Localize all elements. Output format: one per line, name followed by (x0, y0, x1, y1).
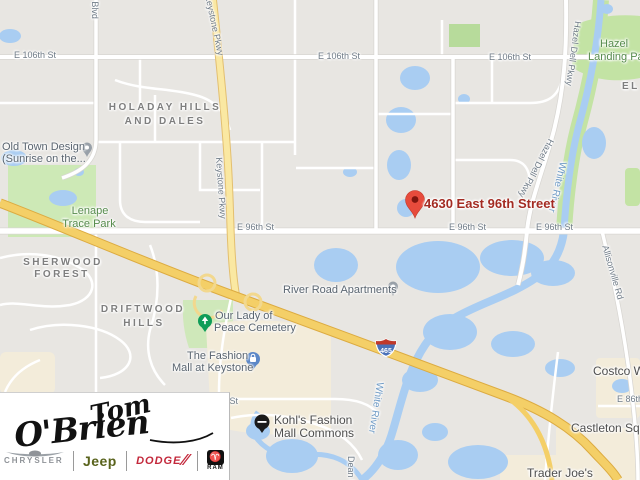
park-label-hazel-landing-line2: Landing Park (588, 51, 640, 63)
shield-route-number: 465 (380, 348, 392, 355)
dodge-wordmark: DODGE (136, 455, 181, 467)
chrysler-wings-icon (4, 450, 66, 458)
brand-dodge: DODGE ∕∕ (136, 452, 188, 470)
street-label-westfield-blvd: Westfield Blvd (90, 0, 100, 19)
poi-label-fashion-mall-line1[interactable]: The Fashion (187, 350, 248, 362)
neighborhood-driftwood-line1: DRIFTWOOD (101, 304, 185, 315)
neighborhood-driftwood-line2: HILLS (123, 318, 164, 329)
neighborhood-holaday-line2: AND DALES (125, 116, 206, 127)
dealer-name-last: O'Brien (12, 402, 150, 455)
brand-divider-2 (126, 451, 127, 471)
poi-label-old-town-line2[interactable]: (Sunrise on the... (2, 153, 86, 165)
poi-label-castleton-square[interactable]: Castleton Square (571, 421, 640, 435)
neighborhood-sherwood-line2: FOREST (34, 269, 90, 280)
street-label-e106th-1: E 106th St (14, 50, 56, 60)
neighborhood-el-partial: EL (622, 81, 640, 92)
park-label-hazel-landing-line1: Hazel (600, 38, 628, 50)
poi-label-trader-joes[interactable]: Trader Joe's (527, 466, 593, 480)
street-label-e96th-3: E 96th St (536, 222, 573, 232)
jeep-wordmark: Jeep (83, 453, 117, 469)
street-label-dean-rd: Dean Rd (346, 456, 356, 480)
destination-address-label[interactable]: 4630 East 96th Street (424, 196, 555, 211)
street-label-e106th-2: E 106th St (318, 51, 360, 61)
street-label-e106th-3: E 106th St (489, 52, 531, 62)
brand-row: CHRYSLER Jeep DODGE ∕∕ ♈ RAM (4, 450, 224, 471)
neighborhood-sherwood-line1: SHERWOOD (23, 257, 103, 268)
poi-label-costco[interactable]: Costco Wholesale (593, 364, 640, 378)
street-label-e96th-1: E 96th St (237, 222, 274, 232)
poi-label-river-road-apartments[interactable]: River Road Apartments (283, 284, 397, 296)
ram-wordmark: RAM (207, 465, 224, 471)
poi-label-cemetery-line2[interactable]: Peace Cemetery (214, 322, 296, 334)
poi-label-old-town-line1[interactable]: Old Town Design (2, 141, 85, 153)
neighborhood-holaday-line1: HOLADAY HILLS (109, 102, 222, 113)
brand-divider-3 (197, 451, 198, 471)
poi-label-fashion-mall-line2[interactable]: Mall at Keystone (172, 362, 253, 374)
brand-ram: ♈ RAM (207, 450, 224, 471)
street-label-e96th-2: E 96th St (449, 222, 486, 232)
ram-head-icon: ♈ (207, 450, 224, 465)
poi-label-kohls-line1[interactable]: Kohl's Fashion (274, 413, 352, 427)
park-label-lenape-line2: Trace Park (62, 218, 115, 230)
brand-chrysler: CHRYSLER (4, 456, 64, 465)
poi-label-cemetery-line1[interactable]: Our Lady of (215, 310, 272, 322)
street-label-e86th: E 86th St (617, 394, 640, 404)
brand-divider-1 (73, 451, 74, 471)
dealer-logo: Tom O'Brien CHRYSLER Jeep DODGE ∕∕ ♈ RAM (0, 392, 230, 480)
park-label-lenape-line1: Lenape (72, 205, 109, 217)
dodge-slashes-icon: ∕∕ (182, 452, 187, 470)
map-screenshot: 465 E 106th St E 106th St E 106th St E 9… (0, 0, 640, 480)
poi-label-kohls-line2[interactable]: Mall Commons (274, 426, 354, 440)
